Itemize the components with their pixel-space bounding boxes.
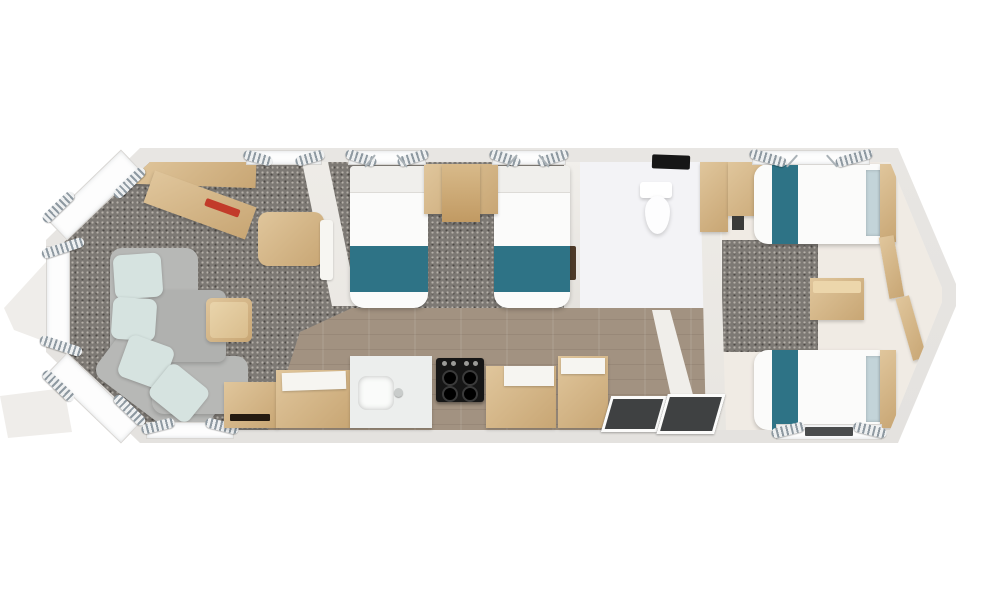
dining-top-window <box>246 150 322 165</box>
dining-bench <box>320 220 333 280</box>
lounge-bottom-window <box>146 422 234 439</box>
worktop-left <box>282 371 347 391</box>
heater-cabinet <box>224 382 278 428</box>
sink-bowl <box>358 376 394 410</box>
hob-knob <box>464 361 469 366</box>
bed-pillow <box>350 166 428 193</box>
cooker-hob <box>436 358 484 402</box>
hob-knob <box>442 361 447 366</box>
wall-shelf <box>879 235 905 299</box>
hob-burner <box>442 370 458 386</box>
rear-wardrobe-gap <box>732 216 744 230</box>
coffee-table <box>206 298 252 342</box>
curtain-tie <box>41 190 77 225</box>
headboard-panel <box>866 356 880 422</box>
curtain-tie <box>242 149 274 167</box>
bed-runner <box>772 164 798 244</box>
rear-bed-top <box>754 164 882 244</box>
heater-vent <box>230 414 270 421</box>
curtain-tie <box>294 149 326 167</box>
hob-burner <box>462 370 478 386</box>
twin-bed-right <box>494 166 570 308</box>
dining-table <box>258 212 324 266</box>
faucet <box>394 388 403 397</box>
rear-bed-bottom <box>754 350 882 430</box>
hob-knob <box>473 361 478 366</box>
bed-pillow <box>494 166 570 193</box>
between-beds-unit-shelf <box>442 164 480 222</box>
headboard-frame <box>880 350 896 428</box>
wall-shelf <box>895 295 926 360</box>
electric-fire <box>204 198 241 218</box>
worktop-right <box>504 366 554 386</box>
bedside-chest <box>810 278 864 320</box>
rear-top-window <box>752 150 870 165</box>
rear-bottom-window <box>776 424 882 440</box>
headboard-panel <box>866 170 880 236</box>
bed-runner <box>350 246 428 292</box>
rear-bottom-window-pane <box>805 427 853 436</box>
chest-top <box>813 281 861 293</box>
tall-unit-top <box>561 358 605 374</box>
sink-unit <box>350 356 432 428</box>
floorplan-canvas <box>0 0 1000 590</box>
hob-burner <box>442 386 458 402</box>
curtain-tie <box>770 421 805 439</box>
door-mat <box>656 394 725 434</box>
bed-runner <box>494 246 570 292</box>
sofa-cushion <box>113 252 164 299</box>
bathroom-skylight <box>652 154 690 169</box>
hob-knob <box>451 361 456 366</box>
hob-burner <box>462 386 478 402</box>
twin-window-right <box>492 150 566 165</box>
curtain-tie <box>488 148 522 167</box>
coffee-table-top <box>210 302 248 338</box>
twin-bed-left <box>350 166 428 308</box>
headboard-frame <box>880 164 896 242</box>
bed-runner <box>772 350 798 430</box>
bay-window-middle <box>46 246 70 348</box>
twin-window-left <box>348 150 426 165</box>
